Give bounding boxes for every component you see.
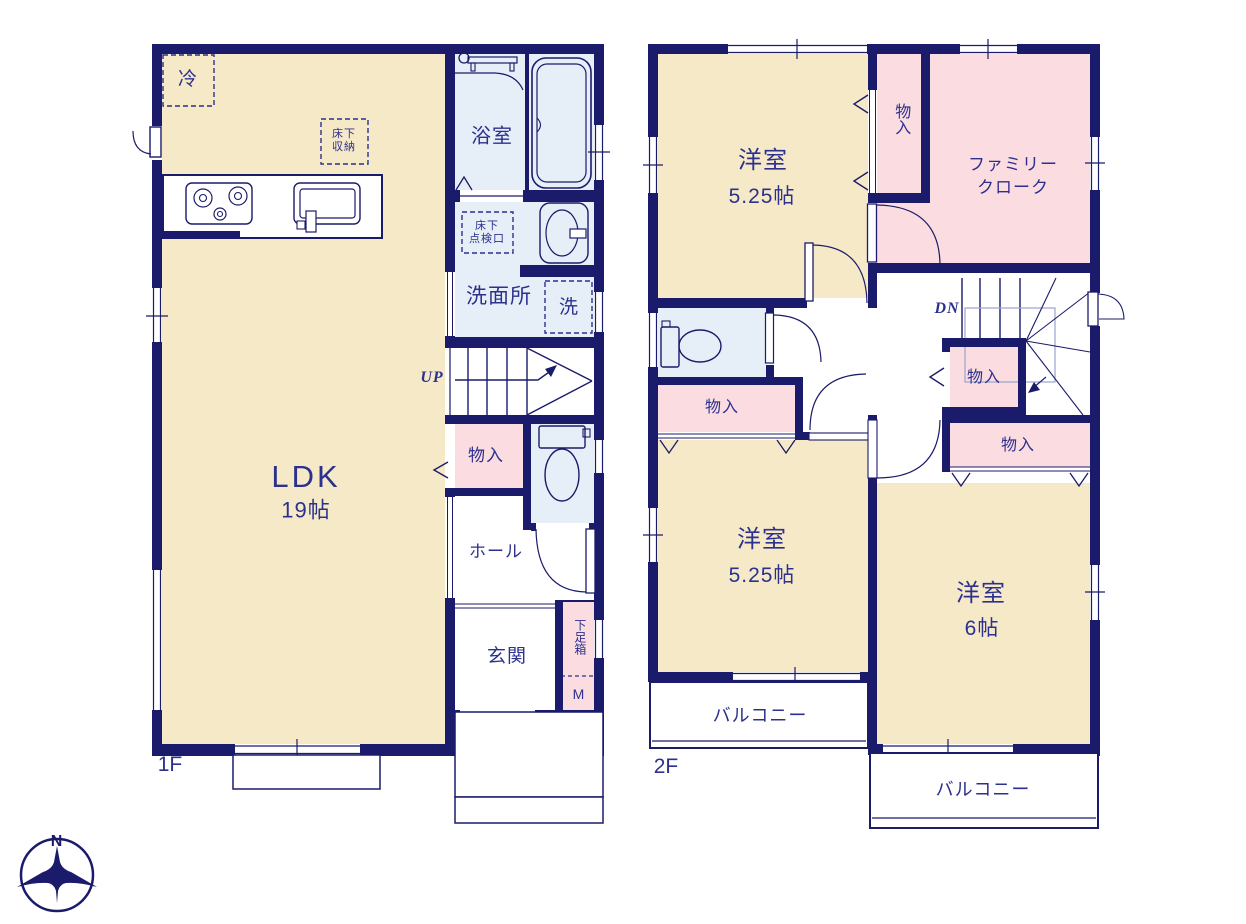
label-bedroom-southwest: 洋室 (737, 526, 787, 554)
label-entrance: 玄関 (487, 646, 527, 668)
label-closet-center: 物入 (967, 369, 1001, 387)
door-leaf (1088, 292, 1098, 326)
room-bedroom-north (658, 54, 868, 298)
label-family-closet: ファミリー クローク (968, 153, 1058, 199)
floor1-plan (133, 44, 610, 823)
label-bedroom-southeast-size: 6帖 (965, 617, 1000, 641)
floorplan-page: LDK 19帖 浴室 洗面所 ホール 玄関 冷 床下 収納 床下 点検口 洗 物… (0, 0, 1246, 924)
label-bedroom-southwest-size: 5.25帖 (729, 564, 796, 588)
label-floor1: 1F (158, 753, 183, 777)
room-bedroom-southwest (658, 440, 868, 672)
label-hall: ホール (469, 542, 523, 562)
label-washroom: 洗面所 (466, 285, 532, 309)
door-leaf (868, 204, 877, 262)
label-underfloor-access: 床下 点検口 (469, 220, 505, 246)
label-balcony-south: バルコニー (936, 780, 1031, 801)
door-swing-arc (536, 529, 586, 592)
door-leaf (766, 313, 774, 363)
label-closet-north: 物入 (891, 103, 909, 135)
label-meter: M (573, 686, 586, 702)
label-refrigerator: 冷 (178, 69, 198, 91)
label-closet-west: 物入 (705, 399, 739, 417)
label-closet-east: 物入 (1001, 437, 1035, 455)
label-bedroom-north-size: 5.25帖 (729, 185, 796, 209)
label-stairs-down: DN (934, 300, 959, 318)
label-floor2: 2F (654, 755, 679, 779)
door-swing-arc (133, 131, 151, 154)
door-swing-arc (774, 315, 821, 362)
floorplan-drawing (0, 0, 1246, 924)
label-washer: 洗 (559, 297, 579, 319)
terrace-step (233, 755, 380, 789)
label-bedroom-southeast: 洋室 (956, 580, 1006, 608)
label-balcony-west: バルコニー (713, 706, 808, 727)
room-ldk (162, 54, 455, 746)
closet-door-chevron (930, 368, 944, 386)
label-underfloor-storage: 床下 収納 (332, 128, 356, 154)
label-compass-north: N (51, 833, 64, 851)
label-bedroom-north: 洋室 (738, 147, 788, 175)
door-swing-arc (1098, 294, 1124, 319)
label-ldk: LDK (271, 459, 340, 495)
door-swing-arc (877, 420, 940, 478)
label-stairs-up: UP (420, 369, 443, 387)
entrance-step (455, 797, 603, 823)
door-leaf (150, 127, 161, 157)
label-bathroom: 浴室 (471, 126, 513, 149)
door-swing-arc (810, 374, 866, 430)
door-leaf (809, 433, 869, 440)
room-bedroom-southeast (877, 483, 1090, 745)
floor1-room-fills (162, 54, 596, 746)
door-leaf (586, 529, 595, 593)
label-shoe-box: 下足箱 (572, 619, 586, 655)
label-ldk-size: 19帖 (281, 497, 330, 522)
stairs-up-arrow (545, 365, 557, 377)
entrance-porch (455, 712, 603, 797)
label-closet-1f: 物入 (468, 446, 504, 466)
door-leaf (868, 420, 877, 478)
compass-bird (17, 846, 97, 903)
door-leaf (805, 243, 813, 301)
stairs-up-1f (452, 348, 592, 415)
